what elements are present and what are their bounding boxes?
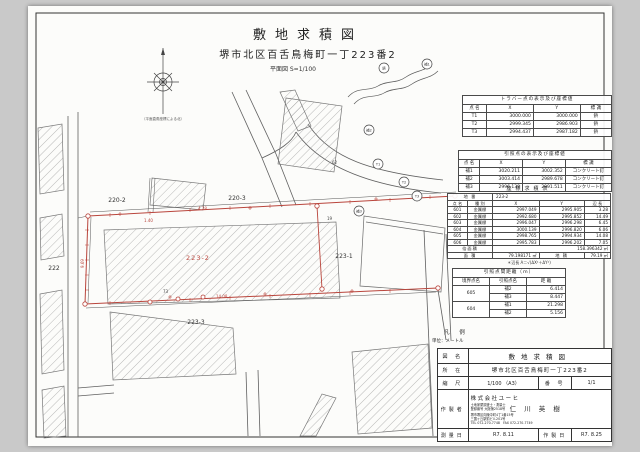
table-title-row: 引照点間距離（ｍ）	[453, 269, 566, 278]
table-header-row: 点 名 X Y 標 識	[459, 160, 612, 168]
building-outline	[360, 216, 445, 292]
lot-label-220-2: 220-2	[108, 197, 126, 204]
area-calc-section: 座標求積表 地 番223-2 点 名 種 別 X Y 辺 長 601金属標299…	[447, 185, 611, 266]
drawing-sheet: 補1 鋲 補2 T1 T2 T3 補3 220-2 220-3 222 223-…	[28, 6, 612, 446]
title-block-row: 図 名 敷地求積図	[438, 349, 612, 364]
dim-label: 4.28	[198, 206, 207, 211]
page-subtitle: 堺市北区百舌鳥梅町一丁223番2	[178, 46, 438, 61]
ref-marker: 補2	[364, 125, 374, 135]
title-block: 図 名 敷地求積図 所 在 堺市北区百舌鳥梅町一丁223番2 縮 尺 1/100…	[437, 348, 612, 442]
lot-label-223-1: 223-1	[335, 253, 353, 260]
lot-label-223-2: 223-2	[186, 254, 210, 262]
traverse-marker: T2	[399, 177, 409, 187]
area-calc-table: 地 番223-2 点 名 種 別 X Y 辺 長 601金属標2997.0492…	[447, 193, 611, 259]
lot-label-220-3: 220-3	[228, 195, 246, 202]
svg-text:補2: 補2	[366, 128, 372, 133]
scan-background: 補1 鋲 補2 T1 T2 T3 補3 220-2 220-3 222 223-…	[0, 0, 640, 452]
table-title-row: 引照点の表示及び座標値	[459, 151, 612, 160]
dim-label: 73	[163, 289, 169, 294]
dim-label: 14.08	[216, 294, 228, 299]
north-compass	[147, 48, 179, 114]
title-block-row: 作製者 株式会社ユーヒ 土地家屋調査士・測量士登録番号 大阪第2518号 仁 川…	[438, 390, 612, 429]
north-arrow-icon	[161, 48, 165, 55]
legend-unit: 単位：メートル	[432, 338, 502, 344]
dim-label: 9.69	[80, 259, 85, 268]
reference-distance-table: 引照点間距離（ｍ） 境界点名 引照点名 距 離 605補26.414 補38.4…	[452, 268, 566, 318]
table-header-row: 点 名 X Y 標 識	[463, 105, 612, 113]
svg-text:T1: T1	[375, 163, 380, 167]
svg-text:T2: T2	[401, 181, 406, 185]
hatched-buildings	[38, 90, 432, 438]
lot-label-223-3: 223-3	[187, 319, 205, 326]
svg-text:T3: T3	[414, 195, 419, 199]
legend: 凡 例 単位：メートル	[432, 328, 502, 344]
table-row: 補23003.4142989.678コンクリート釘	[459, 176, 612, 184]
dim-label: 62	[332, 160, 338, 165]
author-name: 仁 川 英 樹	[510, 403, 563, 413]
survey-markers: 補1 鋲 補2 T1 T2 T3 補3	[354, 59, 432, 216]
dim-label: 19	[327, 216, 333, 221]
area-table-title: 座標求積表	[447, 185, 611, 192]
table-row: 補13020.2113002.352コンクリート釘	[459, 168, 612, 176]
dim-label: 1.40	[144, 218, 153, 223]
table-header-row: 境界点名 引照点名 距 離	[453, 278, 566, 286]
table-row: T13000.0003000.000鋲	[463, 113, 612, 121]
svg-text:補3: 補3	[356, 209, 362, 214]
author-company: 株式会社ユーヒ	[471, 394, 609, 402]
page-title: 敷地求積図	[218, 24, 398, 43]
title-block-row: 縮 尺 1/100 （A3） 番 号 1/1	[438, 377, 612, 390]
table-row: 605補26.414	[453, 286, 566, 294]
traverse-point-table: トラバー点の表示及び座標値 点 名 X Y 標 識 T13000.0003000…	[462, 95, 612, 137]
scale-note: 平面図 S=1/100	[228, 64, 358, 73]
author-qualifications: 土地家屋調査士・測量士登録番号 大阪第2518号	[471, 404, 506, 412]
author-phone: TEL 072-270-7748 FAX 072-270-7749	[471, 421, 609, 425]
title-block-row: 測量日 R7. 8.11 作製日 R7. 8.25	[438, 429, 612, 442]
table-row: T22999.3452986.903鋲	[463, 121, 612, 129]
lot-label-222: 222	[48, 265, 60, 272]
compass-caption: （平面直角座標による北）	[142, 116, 184, 121]
area-note: ＊辺長 A＝√(ΔX²＋ΔY²)	[447, 260, 611, 266]
table-row: T32994.4372987.182鋲	[463, 129, 612, 137]
area-result-row: 面 積79.198171 ㎡地 積79.19 ㎡	[448, 252, 611, 259]
title-block-row: 所 在 堺市北区百舌鳥梅町一丁223番2	[438, 364, 612, 377]
table-row: 604補121.298	[453, 302, 566, 310]
svg-text:補1: 補1	[424, 62, 430, 67]
traverse-marker: T3	[412, 191, 422, 201]
traverse-marker: T1	[373, 159, 383, 169]
legend-title: 凡 例	[432, 328, 502, 336]
stream-wavy-lines	[348, 64, 438, 104]
ref-marker: 補3	[354, 206, 364, 216]
ref-marker: 鋲	[379, 63, 389, 73]
svg-text:鋲: 鋲	[382, 66, 386, 71]
table-title-row: トラバー点の表示及び座標値	[463, 96, 612, 105]
